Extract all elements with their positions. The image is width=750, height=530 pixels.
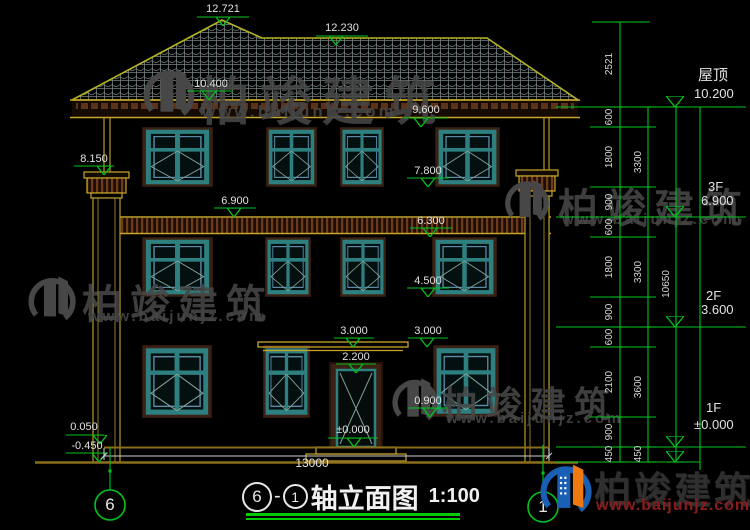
watermark-logo-icon [142, 62, 196, 122]
level-2f-value: 3.600 [701, 302, 734, 317]
elev-label-plinth: 0.050 [66, 421, 102, 433]
dim-1800-b: 1800 [604, 245, 616, 289]
dim-600-b: 600 [604, 205, 616, 249]
elev-label-eave-bottom: 9.600 [406, 104, 446, 116]
elev-label-sill-3f: 7.800 [409, 165, 447, 177]
elev-label-sill-2f: 4.500 [409, 275, 447, 287]
dim-3600: 3600 [633, 365, 645, 409]
title-bubble-start: 6 [242, 482, 272, 512]
elev-label-peak: 12.721 [199, 3, 247, 15]
elev-label-canopy-left: 3.000 [336, 325, 372, 337]
title-scale: 1:100 [429, 485, 480, 508]
windows-3f [142, 127, 500, 187]
dim-600-a: 600 [604, 95, 616, 139]
dim-1800-a: 1800 [604, 135, 616, 179]
watermark-text: 柏竣建筑 [198, 60, 446, 135]
bottom-dimension-text: 13000 [280, 457, 344, 469]
elev-label-ridge: 12.230 [318, 22, 366, 34]
elev-label-ground: -0.450 [66, 440, 108, 452]
watermark-logo-icon [504, 174, 550, 226]
elev-label-eave-top: 10.400 [189, 78, 233, 90]
drawing-title: 6 - 1 轴立面图 1:100 [242, 477, 480, 516]
title-bubble-end: 1 [283, 484, 308, 509]
axis-bubble-left: 6 [98, 495, 122, 515]
elev-label-floor-3f: 6.900 [216, 195, 254, 207]
watermark-url: www.baijunjz.com [562, 211, 739, 228]
watermark-url: www.baijunjz.com [446, 410, 623, 427]
dim-3300-a: 3300 [633, 140, 645, 184]
elev-label-chimney: 8.150 [74, 153, 114, 165]
cad-elevation-drawing: 柏竣建筑 www.baijunjz.com 柏竣建筑 www.baijunjz.… [0, 0, 750, 530]
level-3f-value: 6.900 [701, 193, 734, 208]
elev-label-canopy-right: 3.000 [410, 325, 446, 337]
level-roof-label: 屋顶 [698, 64, 728, 85]
title-dash: - [274, 485, 281, 508]
level-2f-label: 2F [706, 288, 721, 303]
dim-3300-b: 3300 [633, 250, 645, 294]
dim-2521: 2521 [604, 42, 616, 86]
elev-label-door-top: 2.200 [338, 351, 374, 363]
dim-10650: 10650 [661, 262, 673, 306]
level-1f-label: 1F [706, 400, 721, 415]
watermark-url: www.baijunjz.com [88, 308, 265, 325]
elev-label-band: 6.300 [412, 215, 450, 227]
level-1f-value: ±0.000 [694, 417, 734, 432]
floor-band [102, 217, 551, 234]
dim-600-c: 600 [604, 315, 616, 359]
level-roof-value: 10.200 [694, 86, 734, 101]
dim-2100: 2100 [604, 360, 616, 404]
watermark-url: www.baijunjz.com [202, 102, 397, 122]
elev-label-sill-1f: 0.900 [410, 395, 446, 407]
brand-logo-url: www.baijunjz.com [596, 497, 750, 515]
level-3f-label: 3F [708, 179, 723, 194]
elev-label-zero: ±0.000 [330, 424, 376, 436]
brand-logo-icon [540, 456, 592, 520]
title-text: 轴立面图 [311, 477, 419, 516]
watermark-logo-icon [28, 270, 76, 326]
